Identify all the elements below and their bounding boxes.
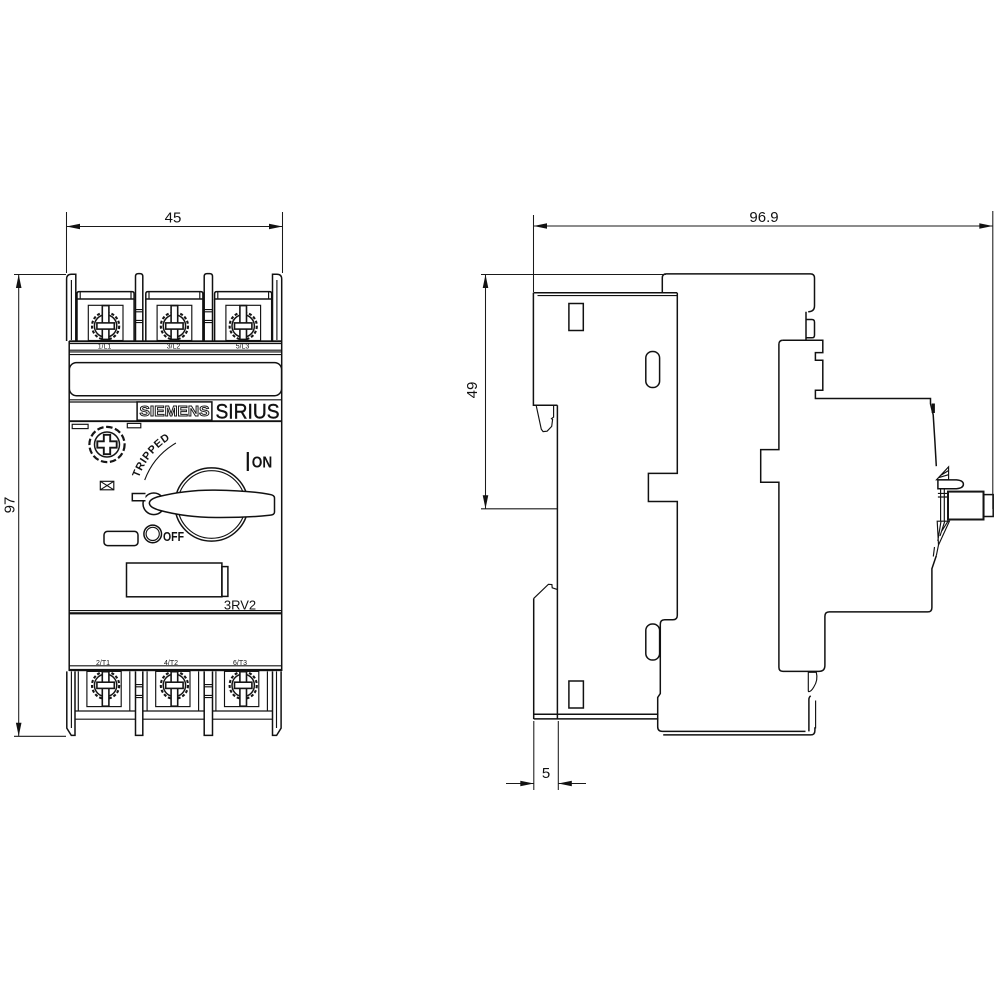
svg-text:OFF: OFF	[163, 529, 184, 544]
svg-text:96.9: 96.9	[749, 209, 778, 226]
svg-text:ON: ON	[252, 455, 272, 472]
svg-text:6/T3: 6/T3	[233, 660, 247, 667]
svg-text:2/T1: 2/T1	[96, 660, 110, 667]
svg-text:49: 49	[464, 382, 481, 399]
svg-text:3/L2: 3/L2	[167, 344, 181, 351]
svg-text:1/L1: 1/L1	[98, 344, 112, 351]
svg-text:4/T2: 4/T2	[164, 660, 178, 667]
svg-text:97: 97	[2, 497, 19, 514]
svg-text:SIRIUS: SIRIUS	[216, 399, 280, 423]
svg-text:5: 5	[542, 765, 550, 782]
svg-text:TRIPPED: TRIPPED	[130, 431, 172, 479]
svg-text:45: 45	[165, 210, 182, 227]
svg-text:5/L3: 5/L3	[236, 344, 250, 351]
svg-text:SIEMENS: SIEMENS	[140, 403, 210, 420]
